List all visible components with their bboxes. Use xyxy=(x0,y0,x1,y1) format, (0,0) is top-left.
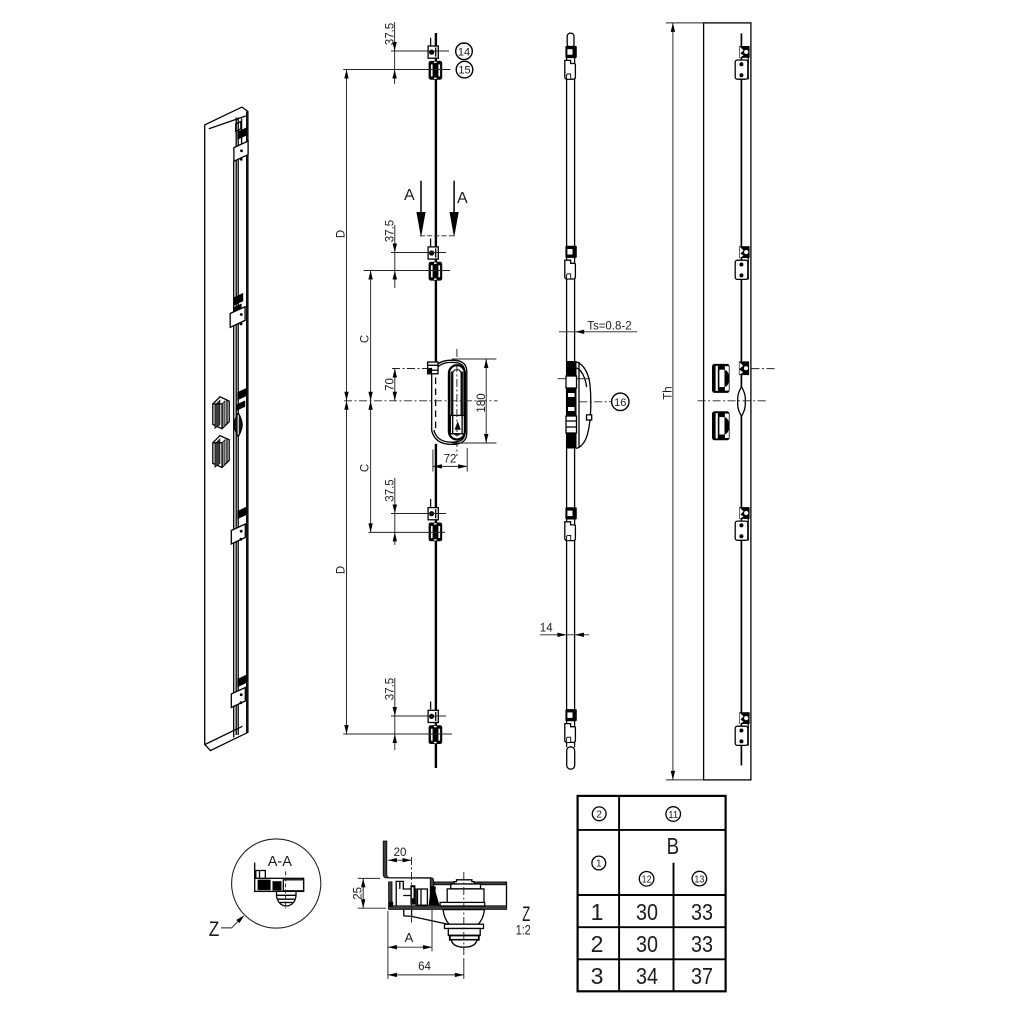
svg-text:37.5: 37.5 xyxy=(385,220,397,242)
svg-text:Ts=0.8-2: Ts=0.8-2 xyxy=(587,320,631,332)
svg-text:3: 3 xyxy=(591,963,604,989)
svg-text:A: A xyxy=(457,190,468,207)
svg-text:37: 37 xyxy=(691,963,713,989)
svg-text:25: 25 xyxy=(353,887,365,900)
svg-text:A-A: A-A xyxy=(268,854,293,870)
svg-text:13: 13 xyxy=(694,874,704,885)
svg-text:33: 33 xyxy=(691,899,713,925)
svg-text:20: 20 xyxy=(394,847,407,859)
svg-text:34: 34 xyxy=(636,963,658,989)
svg-text:B: B xyxy=(667,833,680,859)
svg-text:33: 33 xyxy=(691,931,713,957)
svg-text:180: 180 xyxy=(476,393,488,412)
svg-text:37.5: 37.5 xyxy=(385,678,397,700)
svg-text:Th: Th xyxy=(662,386,674,399)
svg-text:14: 14 xyxy=(458,46,470,58)
svg-text:15: 15 xyxy=(458,65,470,77)
svg-text:2: 2 xyxy=(591,931,604,957)
svg-text:12: 12 xyxy=(642,875,652,886)
svg-text:64: 64 xyxy=(418,961,431,973)
svg-text:C: C xyxy=(360,464,372,472)
svg-text:2: 2 xyxy=(596,809,602,820)
svg-text:72: 72 xyxy=(444,454,457,466)
svg-text:1: 1 xyxy=(596,859,602,870)
svg-text:1: 1 xyxy=(591,899,604,925)
svg-text:30: 30 xyxy=(636,931,658,957)
svg-text:1:2: 1:2 xyxy=(516,923,531,938)
svg-text:A: A xyxy=(404,187,415,204)
svg-text:D: D xyxy=(336,230,348,238)
svg-text:30: 30 xyxy=(636,899,658,925)
svg-text:Z: Z xyxy=(209,918,220,941)
svg-text:A: A xyxy=(405,930,414,945)
svg-text:D: D xyxy=(336,566,348,574)
svg-text:14: 14 xyxy=(540,623,553,635)
svg-text:16: 16 xyxy=(614,397,626,409)
svg-text:37.5: 37.5 xyxy=(385,479,397,501)
svg-text:11: 11 xyxy=(668,810,678,821)
svg-text:70: 70 xyxy=(385,378,397,391)
svg-text:37.5: 37.5 xyxy=(384,23,396,45)
svg-text:C: C xyxy=(360,335,372,343)
